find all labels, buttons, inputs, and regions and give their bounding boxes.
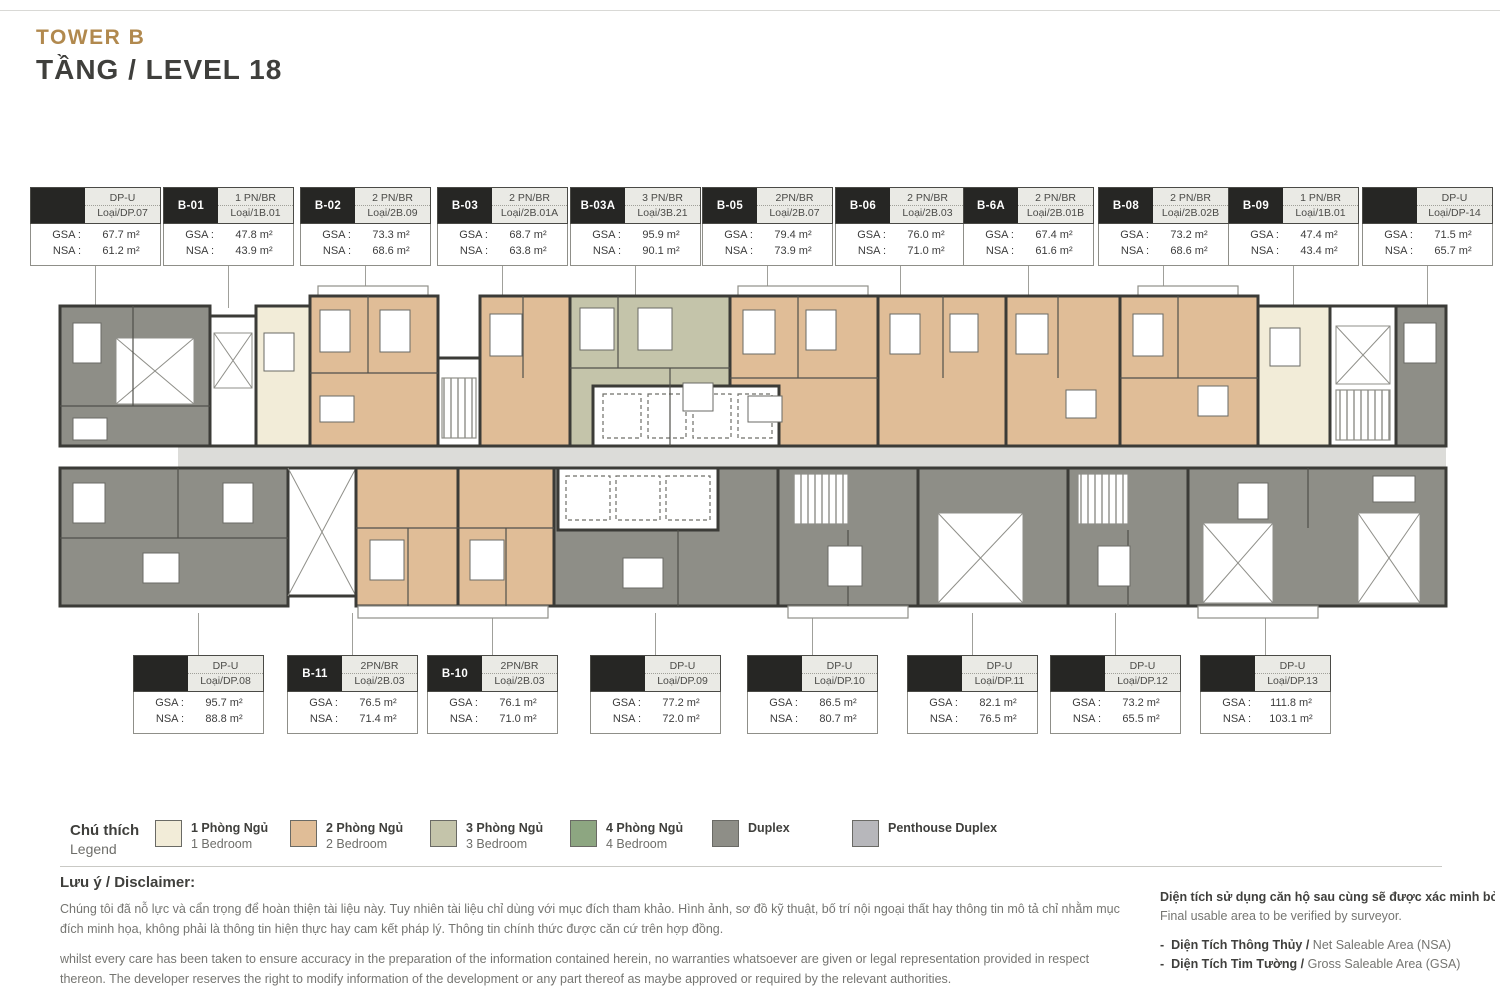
unit-type: DP-U bbox=[85, 190, 160, 206]
unit-code: B-10 bbox=[428, 656, 482, 691]
unit-layout: Loại/3B.21 bbox=[625, 206, 700, 221]
legend-item: 4 Phòng Ngủ 4 Bedroom bbox=[570, 820, 683, 854]
gsa-value: 76.5 m² bbox=[343, 696, 413, 712]
unit-layout: Loại/DP.11 bbox=[962, 674, 1037, 689]
unit-code: B-05 bbox=[703, 188, 757, 223]
unit-layout: Loại/2B.03 bbox=[342, 674, 417, 689]
gsa-label: GSA : bbox=[595, 696, 641, 712]
nsa-label: NSA : bbox=[1055, 712, 1101, 728]
unit-label-box: DP-U Loại/DP.10 GSA : 86.5 m² NSA : 80.7… bbox=[747, 613, 878, 734]
nsa-value: 88.8 m² bbox=[189, 712, 259, 728]
gsa-value: 71.5 m² bbox=[1418, 228, 1488, 244]
gsa-label: GSA : bbox=[168, 228, 214, 244]
unit-layout: Loại/DP.13 bbox=[1255, 674, 1330, 689]
gsa-row: GSA : 47.8 m² bbox=[168, 228, 289, 244]
nsa-label: NSA : bbox=[707, 244, 753, 260]
gsa-value: 67.4 m² bbox=[1019, 228, 1089, 244]
nsa-row: NSA : 88.8 m² bbox=[138, 712, 259, 728]
unit-code: B-08 bbox=[1099, 188, 1153, 223]
corridor bbox=[178, 445, 1446, 468]
gsa-value: 95.9 m² bbox=[626, 228, 696, 244]
unit-code bbox=[1201, 656, 1255, 691]
gsa-row: GSA : 73.3 m² bbox=[305, 228, 426, 244]
gsa-label: GSA : bbox=[292, 696, 338, 712]
gsa-row: GSA : 67.7 m² bbox=[35, 228, 156, 244]
gsa-value: 79.4 m² bbox=[758, 228, 828, 244]
unit-code bbox=[591, 656, 645, 691]
nsa-row: NSA : 103.1 m² bbox=[1205, 712, 1326, 728]
nsa-row: NSA : 76.5 m² bbox=[912, 712, 1033, 728]
floor-plan-drawing bbox=[58, 278, 1450, 626]
unit-label-box: DP-U Loại/DP.12 GSA : 73.2 m² NSA : 65.5… bbox=[1050, 613, 1181, 734]
nsa-label: NSA : bbox=[442, 244, 488, 260]
nsa-label: NSA : bbox=[1367, 244, 1413, 260]
legend-label-vi: 1 Phòng Ngủ bbox=[191, 820, 268, 836]
unit-type: 2PN/BR bbox=[757, 190, 832, 206]
legend-item: 1 Phòng Ngủ 1 Bedroom bbox=[155, 820, 268, 854]
gsa-value: 86.5 m² bbox=[803, 696, 873, 712]
unit-layout: Loại/2B.09 bbox=[355, 206, 430, 221]
gsa-label: GSA : bbox=[35, 228, 81, 244]
unit-type: 3 PN/BR bbox=[625, 190, 700, 206]
unit-layout: Loại/2B.03 bbox=[482, 674, 557, 689]
unit-type: DP-U bbox=[1105, 658, 1180, 674]
unit-type: DP-U bbox=[645, 658, 720, 674]
unit-code bbox=[908, 656, 962, 691]
legend-label-vi: Penthouse Duplex bbox=[888, 820, 997, 836]
unit-type: DP-U bbox=[962, 658, 1037, 674]
floor-plan bbox=[58, 278, 1450, 626]
nsa-value: 72.0 m² bbox=[646, 712, 716, 728]
nsa-row: NSA : 63.8 m² bbox=[442, 244, 563, 260]
page-header: TOWER B TẦNG / LEVEL 18 bbox=[36, 26, 282, 86]
gsa-row: GSA : 95.7 m² bbox=[138, 696, 259, 712]
unit-code: B-03A bbox=[571, 188, 625, 223]
legend-item: 3 Phòng Ngủ 3 Bedroom bbox=[430, 820, 543, 854]
gsa-label: GSA : bbox=[912, 696, 958, 712]
legend-swatch bbox=[712, 820, 739, 847]
unit-type: DP-U bbox=[188, 658, 263, 674]
nsa-value: 68.6 m² bbox=[356, 244, 426, 260]
gsa-value: 111.8 m² bbox=[1256, 696, 1326, 712]
nsa-label: NSA : bbox=[752, 712, 798, 728]
legend-label-en: 2 Bedroom bbox=[326, 836, 403, 854]
nsa-label: NSA : bbox=[432, 712, 478, 728]
nsa-row: NSA : 43.9 m² bbox=[168, 244, 289, 260]
legend-label-en: 1 Bedroom bbox=[191, 836, 268, 854]
disclaimer-vi: Chúng tôi đã nỗ lực và cẩn trọng để hoàn… bbox=[60, 899, 1130, 939]
legend-swatch bbox=[852, 820, 879, 847]
nsa-value: 73.9 m² bbox=[758, 244, 828, 260]
gsa-row: GSA : 73.2 m² bbox=[1103, 228, 1224, 244]
gsa-label: GSA : bbox=[305, 228, 351, 244]
unit-code: B-09 bbox=[1229, 188, 1283, 223]
gsa-label: GSA : bbox=[1103, 228, 1149, 244]
gsa-row: GSA : 82.1 m² bbox=[912, 696, 1033, 712]
unit-layout: Loại/1B.01 bbox=[218, 206, 293, 221]
gsa-label: GSA : bbox=[1205, 696, 1251, 712]
nsa-value: 61.6 m² bbox=[1019, 244, 1089, 260]
unit-type: 2PN/BR bbox=[482, 658, 557, 674]
gsa-row: GSA : 71.5 m² bbox=[1367, 228, 1488, 244]
gsa-label: GSA : bbox=[707, 228, 753, 244]
nsa-row: NSA : 43.4 m² bbox=[1233, 244, 1354, 260]
gsa-row: GSA : 111.8 m² bbox=[1205, 696, 1326, 712]
note-en: Final usable area to be verified by surv… bbox=[1160, 907, 1495, 926]
gsa-value: 47.4 m² bbox=[1284, 228, 1354, 244]
area-notes: Diện tích sử dụng căn hộ sau cùng sẽ đượ… bbox=[1160, 888, 1495, 974]
legend-swatch bbox=[290, 820, 317, 847]
nsa-label: NSA : bbox=[292, 712, 338, 728]
nsa-value: 68.6 m² bbox=[1154, 244, 1224, 260]
gsa-value: 76.0 m² bbox=[891, 228, 961, 244]
nsa-label: NSA : bbox=[912, 712, 958, 728]
nsa-label: NSA : bbox=[35, 244, 81, 260]
nsa-label: NSA : bbox=[968, 244, 1014, 260]
nsa-value: 80.7 m² bbox=[803, 712, 873, 728]
legend-swatch bbox=[430, 820, 457, 847]
nsa-row: NSA : 90.1 m² bbox=[575, 244, 696, 260]
gsa-row: GSA : 47.4 m² bbox=[1233, 228, 1354, 244]
unit-type: 2 PN/BR bbox=[355, 190, 430, 206]
level-title: TẦNG / LEVEL 18 bbox=[36, 54, 282, 86]
gsa-value: 68.7 m² bbox=[493, 228, 563, 244]
nsa-label: NSA : bbox=[305, 244, 351, 260]
legend-label-vi: 3 Phòng Ngủ bbox=[466, 820, 543, 836]
gsa-value: 77.2 m² bbox=[646, 696, 716, 712]
nsa-row: NSA : 71.4 m² bbox=[292, 712, 413, 728]
legend-item: 2 Phòng Ngủ 2 Bedroom bbox=[290, 820, 403, 854]
nsa-value: 71.0 m² bbox=[891, 244, 961, 260]
gsa-label: GSA : bbox=[432, 696, 478, 712]
unit-layout: Loại/DP.08 bbox=[188, 674, 263, 689]
nsa-value: 61.2 m² bbox=[86, 244, 156, 260]
unit-layout: Loại/DP.09 bbox=[645, 674, 720, 689]
floor-plan-page: TOWER B TẦNG / LEVEL 18 DP-U Loại/DP.07 bbox=[0, 0, 1500, 1000]
disclaimer-en: whilst every care has been taken to ensu… bbox=[60, 949, 1130, 989]
gsa-value: 76.1 m² bbox=[483, 696, 553, 712]
gsa-value: 95.7 m² bbox=[189, 696, 259, 712]
legend-title: Chú thích Legend bbox=[70, 822, 139, 857]
unit-label-box: DP-U Loại/DP.08 GSA : 95.7 m² NSA : 88.8… bbox=[133, 613, 264, 734]
gsa-value: 47.8 m² bbox=[219, 228, 289, 244]
gsa-label: GSA : bbox=[575, 228, 621, 244]
nsa-row: NSA : 68.6 m² bbox=[305, 244, 426, 260]
nsa-value: 63.8 m² bbox=[493, 244, 563, 260]
unit-code: B-01 bbox=[164, 188, 218, 223]
unit-layout: Loại/1B.01 bbox=[1283, 206, 1358, 221]
nsa-value: 65.5 m² bbox=[1106, 712, 1176, 728]
unit-type: 1 PN/BR bbox=[218, 190, 293, 206]
nsa-value: 43.4 m² bbox=[1284, 244, 1354, 260]
tower-title: TOWER B bbox=[36, 26, 282, 50]
gsa-row: GSA : 86.5 m² bbox=[752, 696, 873, 712]
legend-label-vi: Duplex bbox=[748, 820, 790, 836]
gsa-note: - Diện Tích Tim Tường / Gross Saleable A… bbox=[1160, 955, 1495, 974]
nsa-row: NSA : 68.6 m² bbox=[1103, 244, 1224, 260]
disclaimer-heading: Lưu ý / Disclaimer: bbox=[60, 874, 1130, 891]
gsa-row: GSA : 68.7 m² bbox=[442, 228, 563, 244]
unit-code bbox=[31, 188, 85, 223]
nsa-label: NSA : bbox=[595, 712, 641, 728]
unit-layout: Loại/2B.01A bbox=[492, 206, 567, 221]
gsa-label: GSA : bbox=[840, 228, 886, 244]
gsa-label: GSA : bbox=[752, 696, 798, 712]
gsa-label: GSA : bbox=[1367, 228, 1413, 244]
nsa-value: 71.4 m² bbox=[343, 712, 413, 728]
legend-item: Duplex bbox=[712, 820, 790, 847]
nsa-label: NSA : bbox=[575, 244, 621, 260]
unit-layout: Loại/DP-14 bbox=[1417, 206, 1492, 221]
gsa-value: 73.2 m² bbox=[1106, 696, 1176, 712]
gsa-row: GSA : 77.2 m² bbox=[595, 696, 716, 712]
unit-code bbox=[1363, 188, 1417, 223]
nsa-label: NSA : bbox=[1205, 712, 1251, 728]
unit-code: B-02 bbox=[301, 188, 355, 223]
nsa-note: - Diện Tích Thông Thủy / Net Saleable Ar… bbox=[1160, 936, 1495, 955]
unit-type: DP-U bbox=[1417, 190, 1492, 206]
unit-code: B-11 bbox=[288, 656, 342, 691]
unit-layout: Loại/2B.02B bbox=[1153, 206, 1228, 221]
unit-layout: Loại/DP.07 bbox=[85, 206, 160, 221]
nsa-value: 90.1 m² bbox=[626, 244, 696, 260]
nsa-row: NSA : 72.0 m² bbox=[595, 712, 716, 728]
nsa-label: NSA : bbox=[840, 244, 886, 260]
nsa-value: 65.7 m² bbox=[1418, 244, 1488, 260]
nsa-row: NSA : 71.0 m² bbox=[840, 244, 961, 260]
unit-type: 2 PN/BR bbox=[492, 190, 567, 206]
nsa-label: NSA : bbox=[1233, 244, 1279, 260]
nsa-row: NSA : 80.7 m² bbox=[752, 712, 873, 728]
gsa-value: 73.3 m² bbox=[356, 228, 426, 244]
unit-layout: Loại/DP.10 bbox=[802, 674, 877, 689]
gsa-row: GSA : 76.5 m² bbox=[292, 696, 413, 712]
gsa-label: GSA : bbox=[442, 228, 488, 244]
top-divider bbox=[0, 10, 1500, 11]
unit-type: 2 PN/BR bbox=[890, 190, 965, 206]
legend-label-vi: 4 Phòng Ngủ bbox=[606, 820, 683, 836]
unit-label-box: B-10 2PN/BR Loại/2B.03 GSA : 76.1 m² NSA… bbox=[427, 613, 558, 734]
unit-type: DP-U bbox=[1255, 658, 1330, 674]
unit-code: B-6A bbox=[964, 188, 1018, 223]
nsa-row: NSA : 61.2 m² bbox=[35, 244, 156, 260]
unit-type: 2PN/BR bbox=[342, 658, 417, 674]
legend-label-en: 3 Bedroom bbox=[466, 836, 543, 854]
unit-code bbox=[748, 656, 802, 691]
legend-title-en: Legend bbox=[70, 841, 139, 857]
unit-type: DP-U bbox=[802, 658, 877, 674]
gsa-row: GSA : 76.0 m² bbox=[840, 228, 961, 244]
gsa-label: GSA : bbox=[1233, 228, 1279, 244]
gsa-row: GSA : 67.4 m² bbox=[968, 228, 1089, 244]
nsa-row: NSA : 71.0 m² bbox=[432, 712, 553, 728]
nsa-label: NSA : bbox=[1103, 244, 1149, 260]
gsa-label: GSA : bbox=[1055, 696, 1101, 712]
gsa-row: GSA : 73.2 m² bbox=[1055, 696, 1176, 712]
gsa-row: GSA : 76.1 m² bbox=[432, 696, 553, 712]
gsa-row: GSA : 79.4 m² bbox=[707, 228, 828, 244]
nsa-row: NSA : 61.6 m² bbox=[968, 244, 1089, 260]
gsa-label: GSA : bbox=[968, 228, 1014, 244]
nsa-label: NSA : bbox=[168, 244, 214, 260]
gsa-value: 82.1 m² bbox=[963, 696, 1033, 712]
nsa-row: NSA : 65.7 m² bbox=[1367, 244, 1488, 260]
gsa-label: GSA : bbox=[138, 696, 184, 712]
legend-item: Penthouse Duplex bbox=[852, 820, 997, 847]
section-divider bbox=[60, 866, 1442, 867]
unit-type: 2 PN/BR bbox=[1018, 190, 1093, 206]
unit-label-box: DP-U Loại/DP.11 GSA : 82.1 m² NSA : 76.5… bbox=[907, 613, 1038, 734]
note-vi: Diện tích sử dụng căn hộ sau cùng sẽ đượ… bbox=[1160, 888, 1495, 907]
nsa-value: 103.1 m² bbox=[1256, 712, 1326, 728]
unit-code bbox=[134, 656, 188, 691]
unit-layout: Loại/DP.12 bbox=[1105, 674, 1180, 689]
unit-label-box: DP-U Loại/DP.13 GSA : 111.8 m² NSA : 103… bbox=[1200, 613, 1331, 734]
gsa-row: GSA : 95.9 m² bbox=[575, 228, 696, 244]
unit-code: B-03 bbox=[438, 188, 492, 223]
unit-code bbox=[1051, 656, 1105, 691]
gsa-value: 73.2 m² bbox=[1154, 228, 1224, 244]
unit-label-box: DP-U Loại/DP.09 GSA : 77.2 m² NSA : 72.0… bbox=[590, 613, 721, 734]
unit-type: 1 PN/BR bbox=[1283, 190, 1358, 206]
legend-swatch bbox=[155, 820, 182, 847]
legend-swatch bbox=[570, 820, 597, 847]
nsa-row: NSA : 65.5 m² bbox=[1055, 712, 1176, 728]
disclaimer: Lưu ý / Disclaimer: Chúng tôi đã nỗ lực … bbox=[60, 874, 1130, 999]
unit-layout: Loại/2B.07 bbox=[757, 206, 832, 221]
gsa-value: 67.7 m² bbox=[86, 228, 156, 244]
nsa-value: 43.9 m² bbox=[219, 244, 289, 260]
legend-label-en: 4 Bedroom bbox=[606, 836, 683, 854]
unit-type: 2 PN/BR bbox=[1153, 190, 1228, 206]
nsa-value: 71.0 m² bbox=[483, 712, 553, 728]
unit-label-box: B-11 2PN/BR Loại/2B.03 GSA : 76.5 m² NSA… bbox=[287, 613, 418, 734]
unit-code: B-06 bbox=[836, 188, 890, 223]
legend-label-vi: 2 Phòng Ngủ bbox=[326, 820, 403, 836]
unit-layout: Loại/2B.01B bbox=[1018, 206, 1093, 221]
nsa-value: 76.5 m² bbox=[963, 712, 1033, 728]
unit-layout: Loại/2B.03 bbox=[890, 206, 965, 221]
legend-title-vi: Chú thích bbox=[70, 822, 139, 839]
nsa-label: NSA : bbox=[138, 712, 184, 728]
nsa-row: NSA : 73.9 m² bbox=[707, 244, 828, 260]
